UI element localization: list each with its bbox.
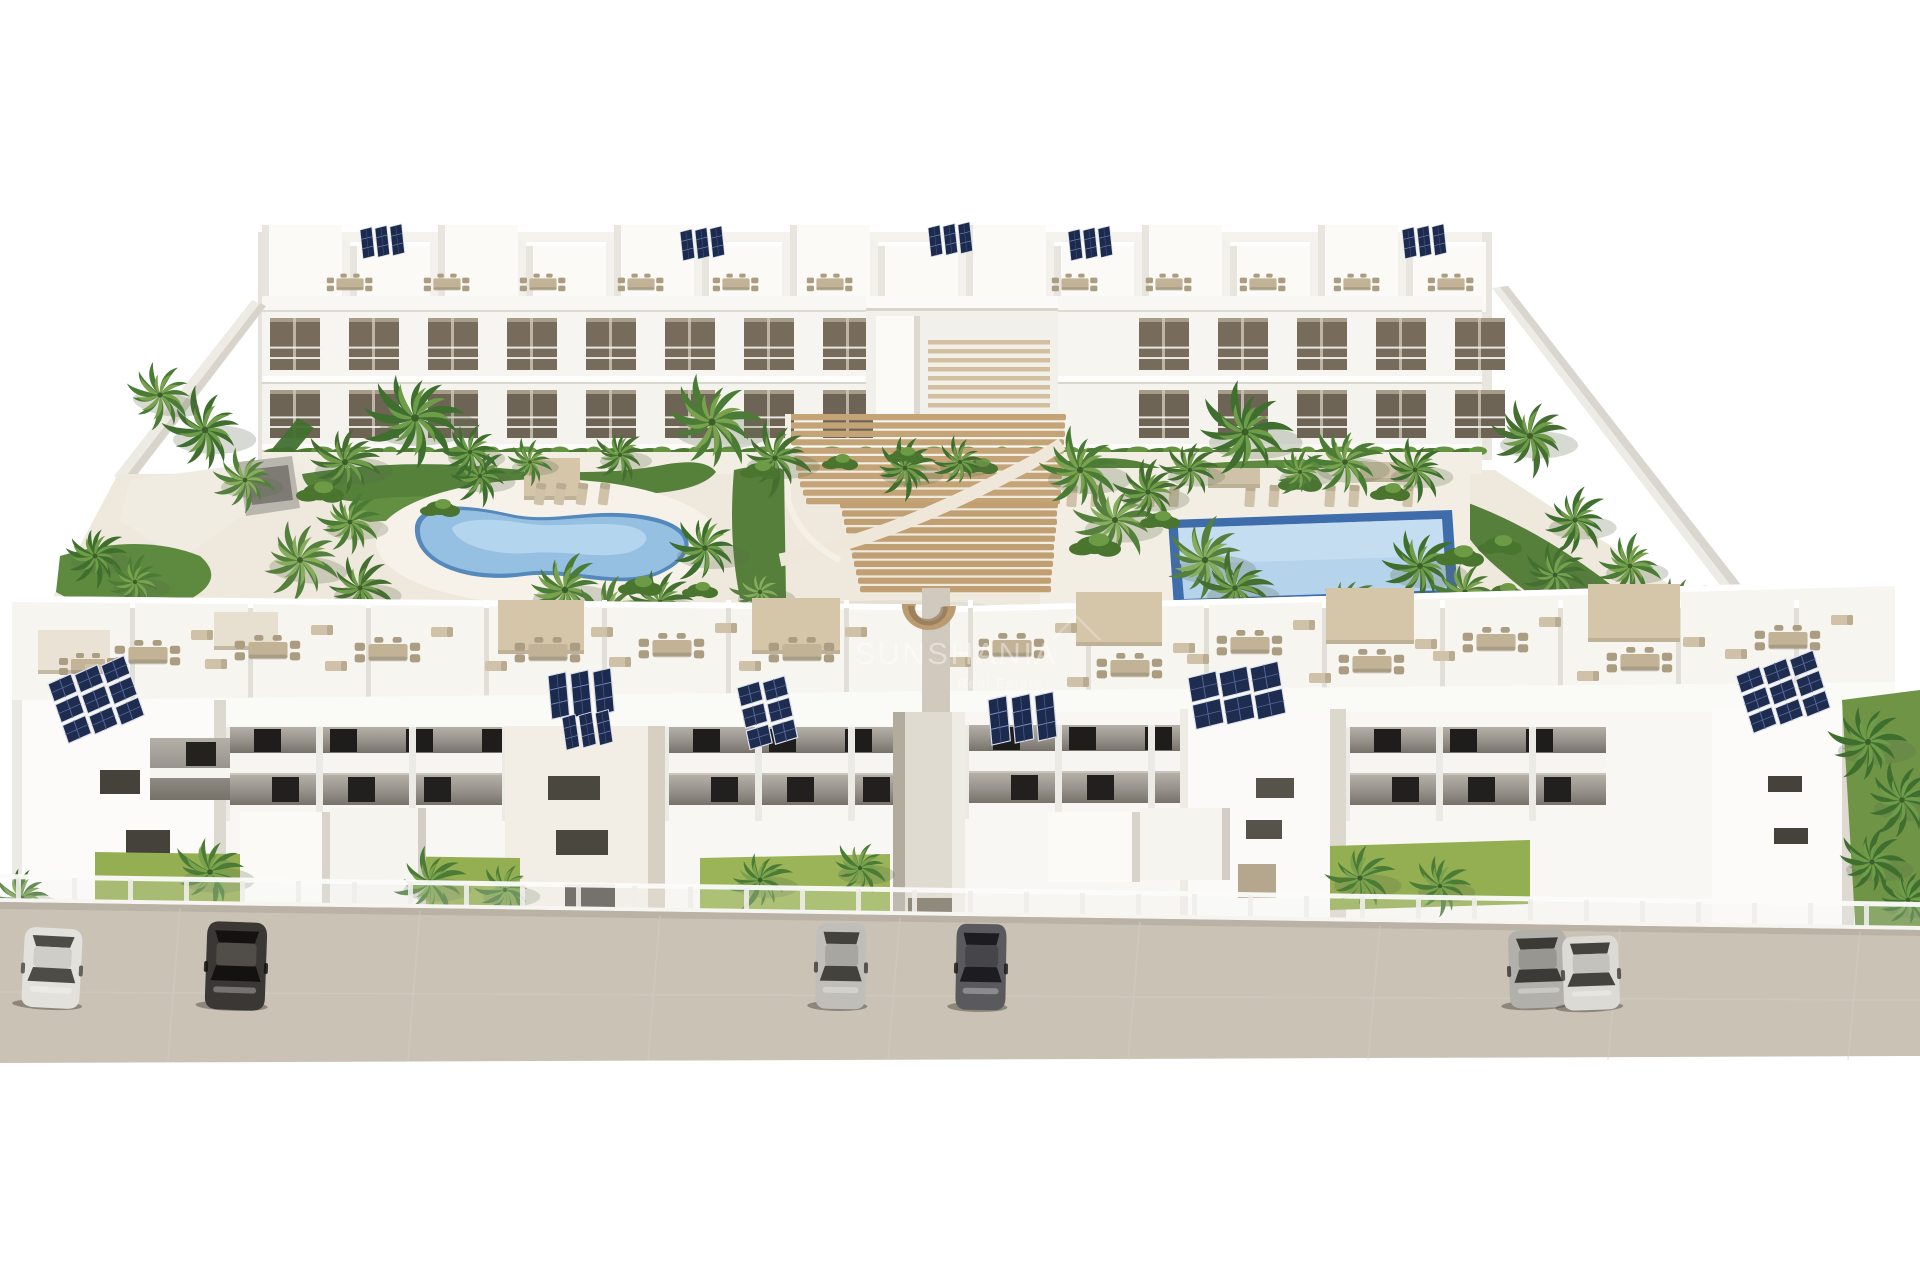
svg-text:Real Estate: Real Estate [957, 675, 1043, 691]
svg-text:SUNSHANIA: SUNSHANIA [854, 636, 1057, 671]
